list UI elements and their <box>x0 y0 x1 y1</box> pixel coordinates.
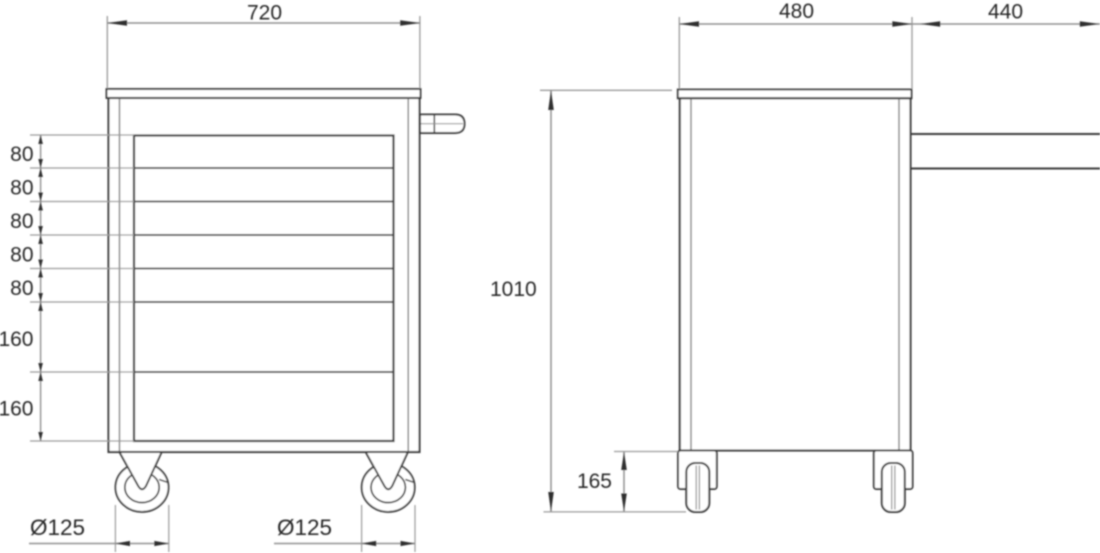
svg-text:160: 160 <box>0 328 34 351</box>
svg-text:80: 80 <box>10 277 33 300</box>
svg-text:720: 720 <box>247 2 282 25</box>
svg-text:Ø125: Ø125 <box>30 515 85 540</box>
svg-text:80: 80 <box>10 244 33 267</box>
svg-text:80: 80 <box>10 210 33 233</box>
svg-text:165: 165 <box>577 470 612 493</box>
svg-text:480: 480 <box>779 0 814 23</box>
svg-text:1010: 1010 <box>490 278 537 301</box>
svg-text:160: 160 <box>0 398 34 421</box>
svg-text:440: 440 <box>988 1 1023 24</box>
svg-text:80: 80 <box>10 143 33 166</box>
svg-text:80: 80 <box>10 177 33 200</box>
svg-text:Ø125: Ø125 <box>277 515 332 540</box>
